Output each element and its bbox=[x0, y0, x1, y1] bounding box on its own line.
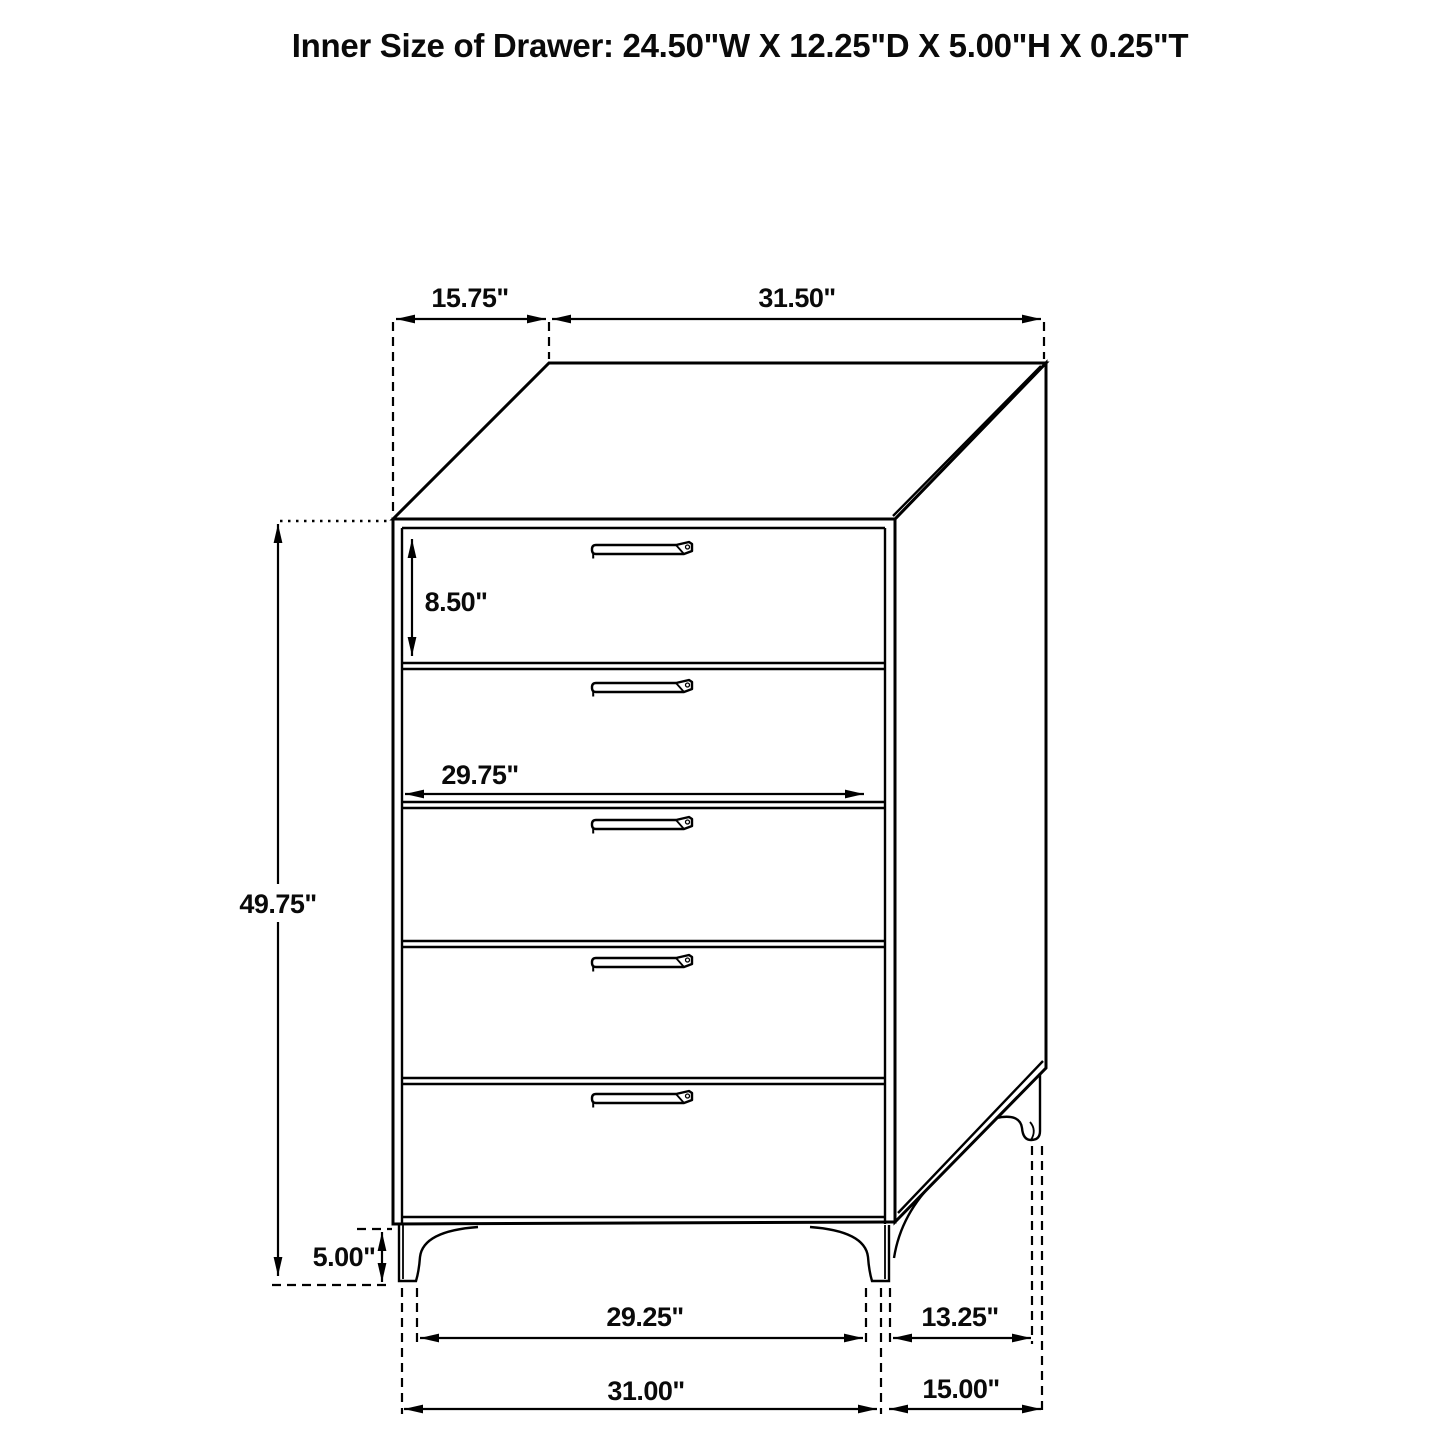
chest-body bbox=[393, 363, 1046, 1281]
front-face bbox=[393, 519, 895, 1224]
front-left-foot bbox=[399, 1225, 478, 1281]
label-feet-outer-width: 31.00" bbox=[607, 1376, 684, 1406]
label-first-drawer-height: 8.50" bbox=[425, 587, 488, 617]
label-foot-height: 5.00" bbox=[313, 1242, 376, 1272]
label-top-depth: 15.75" bbox=[431, 283, 508, 313]
label-overall-height: 49.75" bbox=[239, 889, 316, 919]
drawing-title: Inner Size of Drawer: 24.50"W X 12.25"D … bbox=[292, 27, 1189, 64]
chest-dimension-diagram: Inner Size of Drawer: 24.50"W X 12.25"D … bbox=[0, 0, 1445, 1445]
front-right-foot bbox=[810, 1225, 889, 1281]
label-feet-inner-depth: 13.25" bbox=[921, 1302, 998, 1332]
label-feet-outer-depth: 15.00" bbox=[922, 1374, 999, 1404]
label-feet-inner-width: 29.25" bbox=[606, 1302, 683, 1332]
label-top-width: 31.50" bbox=[758, 283, 835, 313]
label-drawer-front-width: 29.75" bbox=[441, 760, 518, 790]
diagram-page: Inner Size of Drawer: 24.50"W X 12.25"D … bbox=[0, 0, 1445, 1445]
